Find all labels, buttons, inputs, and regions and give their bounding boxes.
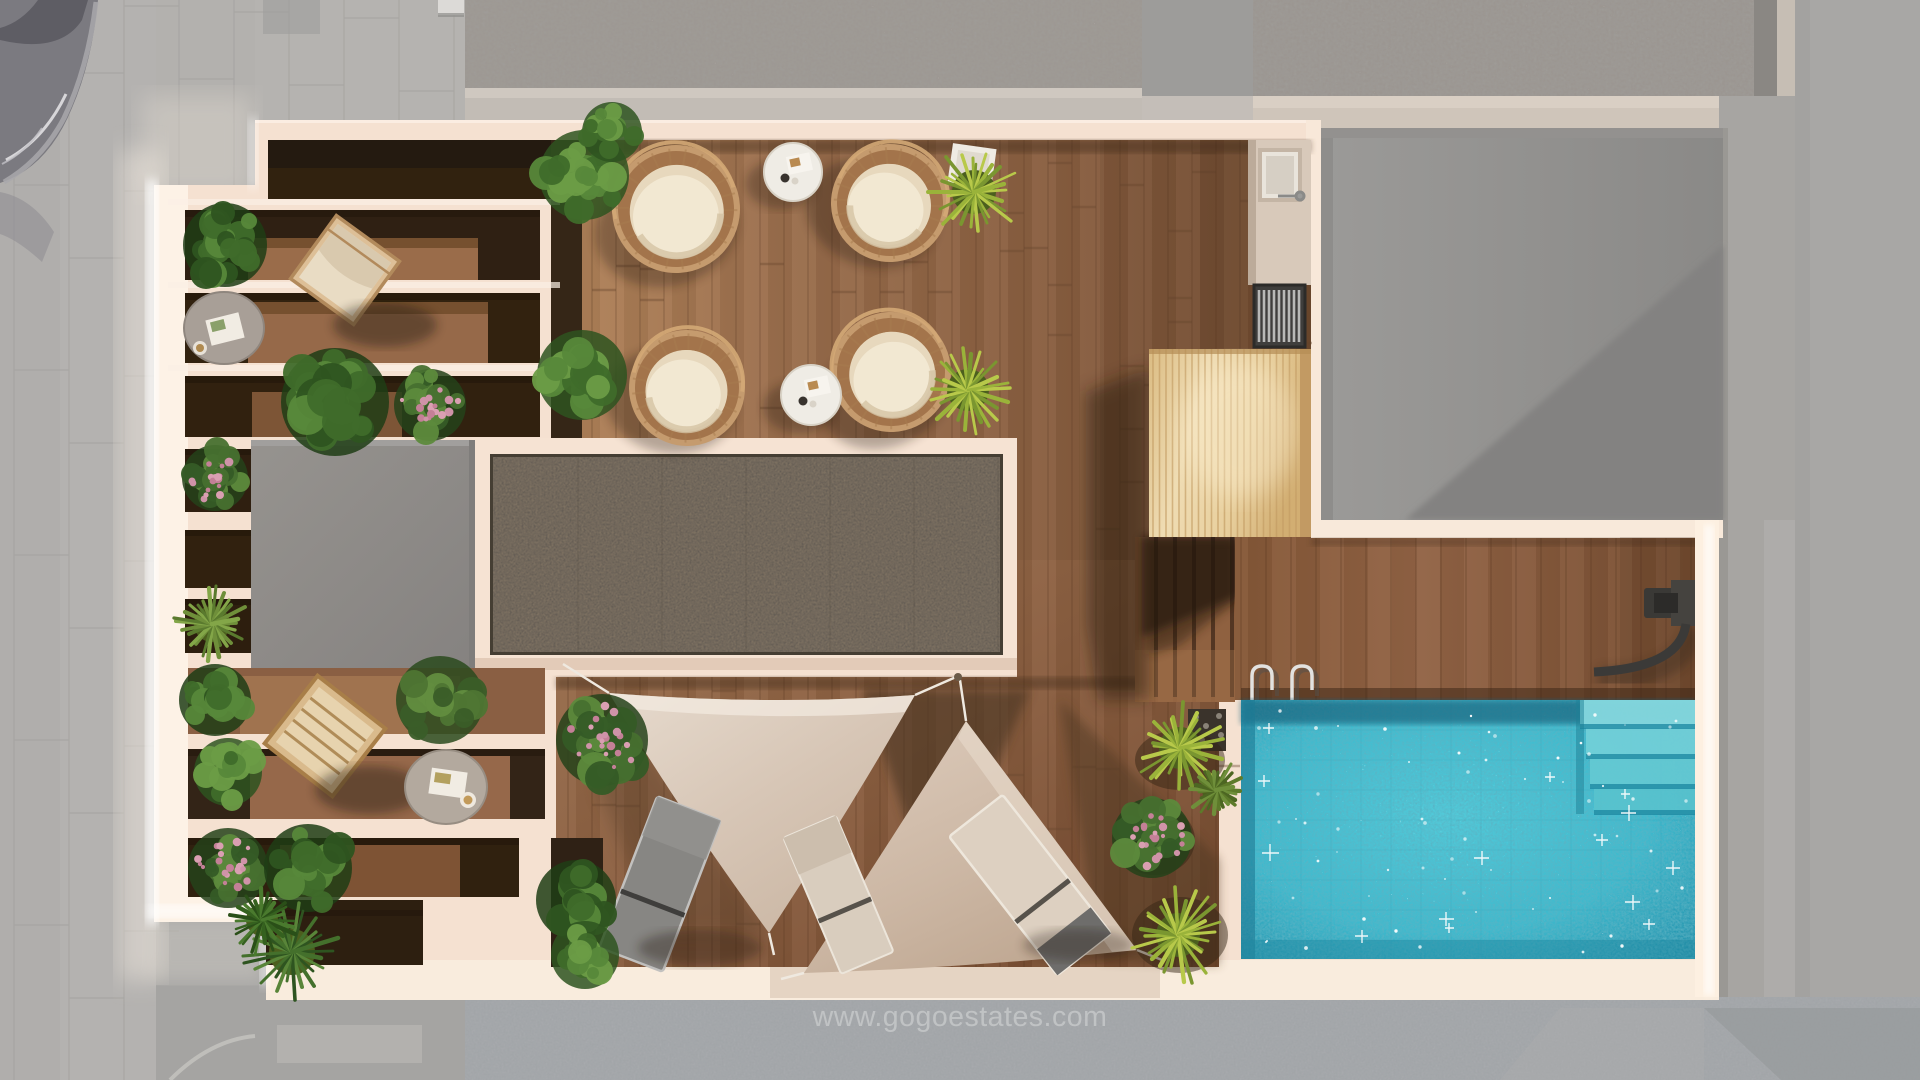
- svg-text:www.gogoestates.com: www.gogoestates.com: [812, 1001, 1108, 1033]
